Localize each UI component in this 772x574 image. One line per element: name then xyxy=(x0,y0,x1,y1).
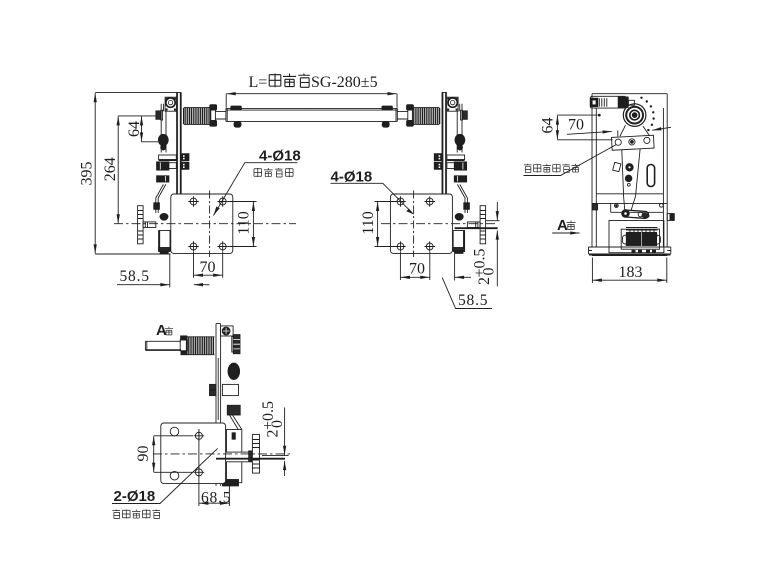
svg-text:58.5: 58.5 xyxy=(458,292,488,309)
svg-text:L=: L= xyxy=(249,74,268,91)
svg-text:64: 64 xyxy=(126,121,143,137)
svg-text:68.5: 68.5 xyxy=(201,490,231,507)
svg-text:70: 70 xyxy=(200,259,216,276)
svg-text:4-Ø18: 4-Ø18 xyxy=(259,148,301,165)
svg-text:0: 0 xyxy=(481,268,498,276)
svg-text:110: 110 xyxy=(236,211,253,234)
svg-text:264: 264 xyxy=(102,157,119,181)
svg-text:183: 183 xyxy=(619,264,643,281)
svg-text:90: 90 xyxy=(135,446,152,462)
svg-text:64: 64 xyxy=(539,118,556,134)
svg-text:395: 395 xyxy=(78,162,95,186)
svg-text:70: 70 xyxy=(568,117,584,134)
svg-text:A: A xyxy=(156,322,167,339)
svg-text:A: A xyxy=(557,217,568,234)
svg-text:0: 0 xyxy=(269,420,286,428)
svg-text:70: 70 xyxy=(409,261,425,278)
svg-text:SG-280±5: SG-280±5 xyxy=(311,74,378,91)
svg-text:110: 110 xyxy=(360,211,377,234)
svg-text:2-Ø18: 2-Ø18 xyxy=(114,488,156,505)
svg-text:58.5: 58.5 xyxy=(120,268,150,285)
